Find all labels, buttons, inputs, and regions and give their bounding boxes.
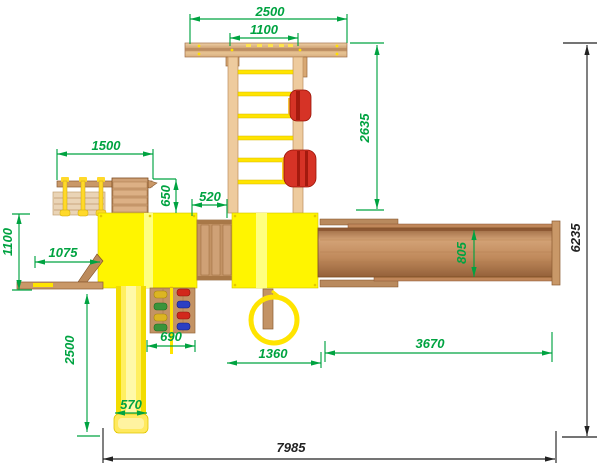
dim-label: 2500 xyxy=(62,335,77,366)
dim-label: 805 xyxy=(454,241,469,263)
bridge xyxy=(197,220,232,280)
dim-swing-beam-3670: 3670 xyxy=(325,332,552,362)
dim-label: 6235 xyxy=(568,223,583,253)
swing-beam xyxy=(318,219,560,287)
seat-body xyxy=(290,90,311,121)
gym-ring xyxy=(251,289,297,343)
tower-platforms xyxy=(98,213,318,288)
board-plank xyxy=(17,282,103,289)
ladder-rung xyxy=(238,136,293,140)
dim-ladder-length-2635: 2635 xyxy=(350,43,384,210)
ladder-rung xyxy=(238,92,293,96)
tower-b-highlight xyxy=(256,213,267,288)
swing-seat-upper xyxy=(288,90,311,121)
playground-drawing-canvas: 2500 1100 2635 1500 650 520 1100 xyxy=(0,0,600,465)
climb-wall-centerline-top xyxy=(170,288,173,333)
gym-access-ladder xyxy=(112,178,148,215)
dim-board-depth-1100: 1100 xyxy=(0,214,32,290)
dim-label: 7985 xyxy=(277,440,307,455)
dim-overall-width-7985: 7985 xyxy=(103,428,556,463)
seat-stripe xyxy=(296,91,300,120)
ladder-rung xyxy=(238,114,293,118)
seat-stripe xyxy=(297,151,300,186)
climb-hold-yellow xyxy=(154,291,167,298)
dim-overall-depth-6235: 6235 xyxy=(562,43,597,437)
climb-hold-blue xyxy=(177,301,190,308)
gym-hangers xyxy=(60,177,106,216)
ladder-rung xyxy=(238,70,293,74)
dim-ring-offset-1360: 1360 xyxy=(227,346,321,368)
dim-slide-length-2500: 2500 xyxy=(62,294,100,436)
dim-label: 1100 xyxy=(250,22,279,37)
dim-label: 570 xyxy=(120,397,142,412)
ladder-rail-right xyxy=(293,57,303,213)
slide-end-inner xyxy=(118,418,144,429)
swing-seat-lower xyxy=(282,150,316,187)
board-yellow-strip xyxy=(33,283,53,287)
climb-hold-red xyxy=(177,312,190,319)
tower-b-platform xyxy=(232,213,318,288)
ladder-rail-left xyxy=(228,57,238,213)
dim-label: 2635 xyxy=(357,113,372,144)
swing-beam-endcap xyxy=(552,221,560,285)
dim-label: 1500 xyxy=(92,138,122,153)
climb-hold-yellow xyxy=(154,314,167,321)
dim-label: 2500 xyxy=(255,4,286,19)
dim-label: 650 xyxy=(158,184,173,206)
tower-a-highlight xyxy=(144,213,153,288)
playground-top-view-drawing: 2500 1100 2635 1500 650 520 1100 xyxy=(0,0,600,465)
dim-label: 520 xyxy=(199,189,221,204)
climb-hold-green xyxy=(154,303,167,310)
dim-label: 3670 xyxy=(416,336,446,351)
dim-label: 1100 xyxy=(0,227,15,256)
overhead-beam-shadow xyxy=(185,48,347,51)
left-gym xyxy=(53,177,157,216)
dim-label: 1075 xyxy=(49,245,79,260)
dim-label: 690 xyxy=(160,329,182,344)
dim-ladder-width-1100: 1100 xyxy=(230,22,298,46)
seat-stripe xyxy=(305,151,308,186)
climb-hold-red xyxy=(177,289,190,296)
dim-gym-depth-650: 650 xyxy=(158,179,179,213)
swing-beam-body xyxy=(318,228,554,277)
dim-left-gym-1500: 1500 xyxy=(57,138,176,180)
ring-circle xyxy=(251,297,297,343)
gym-ladder xyxy=(228,57,316,213)
dim-label: 1360 xyxy=(259,346,289,361)
